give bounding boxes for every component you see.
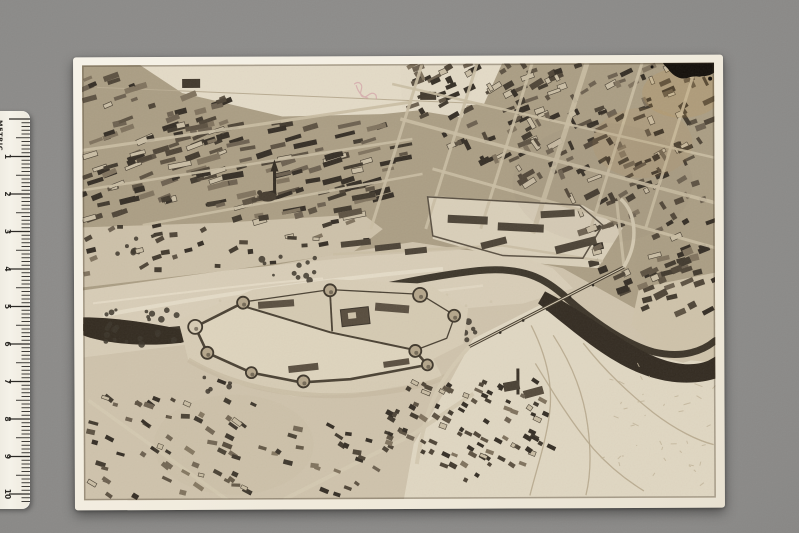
film-grain <box>82 63 716 501</box>
desk-surface: 12345678910 METRIC <box>0 0 799 533</box>
ruler-metric-label: METRIC <box>0 120 4 151</box>
svg-text:10: 10 <box>3 489 12 499</box>
svg-text:5: 5 <box>3 304 12 309</box>
svg-text:3: 3 <box>3 229 12 234</box>
ruler-scale: 12345678910 <box>0 111 30 509</box>
svg-text:6: 6 <box>3 341 12 346</box>
svg-text:2: 2 <box>3 191 12 196</box>
aerial-photograph <box>82 63 716 501</box>
svg-text:8: 8 <box>3 416 12 421</box>
svg-text:4: 4 <box>3 266 12 271</box>
svg-text:9: 9 <box>3 454 12 459</box>
svg-text:7: 7 <box>3 379 12 384</box>
svg-text:1: 1 <box>3 154 12 159</box>
photo-print <box>73 55 725 511</box>
metric-ruler: 12345678910 METRIC <box>0 111 30 509</box>
